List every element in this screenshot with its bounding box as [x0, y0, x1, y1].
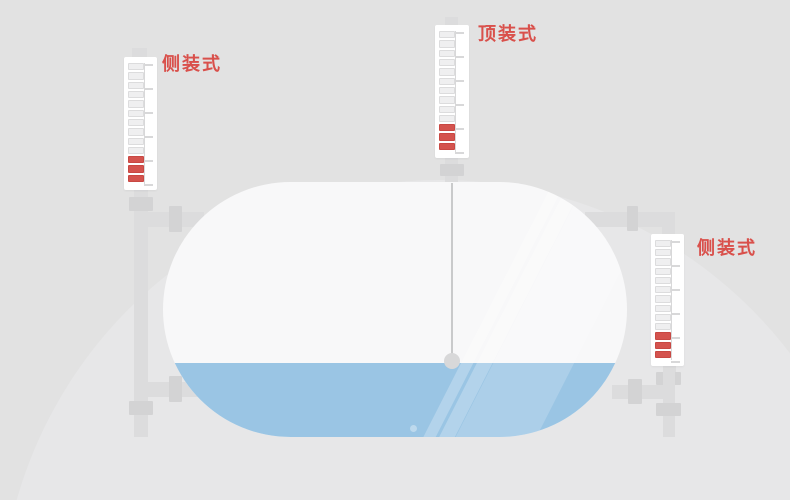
label-top-mounted: 顶装式 — [478, 25, 538, 45]
diagram-canvas: 侧装式 顶装式 侧装式 — [0, 0, 790, 500]
scale-tick — [671, 289, 681, 291]
scale-tick — [455, 104, 465, 106]
scale-tick — [455, 56, 465, 58]
flange — [440, 164, 464, 176]
flange — [627, 206, 638, 231]
scale-tick — [144, 136, 154, 138]
gauge-top-mounted — [435, 25, 469, 158]
gauge-scale-ticks — [651, 234, 684, 366]
scale-tick — [671, 265, 681, 267]
scale-tick — [455, 32, 465, 34]
scale-tick — [671, 241, 681, 243]
label-side-mounted-right: 侧装式 — [697, 239, 757, 259]
scale-tick — [671, 313, 681, 315]
bubble — [410, 425, 417, 432]
pipe-elbow-right — [662, 214, 675, 236]
gauge-side-right — [651, 234, 684, 366]
scale-tick — [455, 80, 465, 82]
scale-tick — [671, 337, 681, 339]
scale-tick — [144, 160, 154, 162]
flange — [129, 401, 153, 415]
gauge-scale-ticks — [124, 57, 157, 190]
scale-tick — [144, 184, 154, 186]
scale-tick — [455, 128, 465, 130]
scale-tick — [144, 112, 154, 114]
float-ball — [444, 353, 460, 369]
scale-tick — [455, 152, 465, 154]
gauge-scale-ticks — [435, 25, 469, 158]
flange — [656, 403, 681, 416]
scale-tick — [671, 361, 681, 363]
scale-tick — [144, 64, 154, 66]
flange — [129, 197, 153, 211]
flange — [628, 379, 642, 404]
gauge-side-left — [124, 57, 157, 190]
label-side-mounted-left: 侧装式 — [162, 55, 222, 75]
scale-tick — [144, 88, 154, 90]
flange — [169, 206, 182, 232]
float-wire — [451, 183, 453, 361]
tank — [163, 182, 627, 437]
